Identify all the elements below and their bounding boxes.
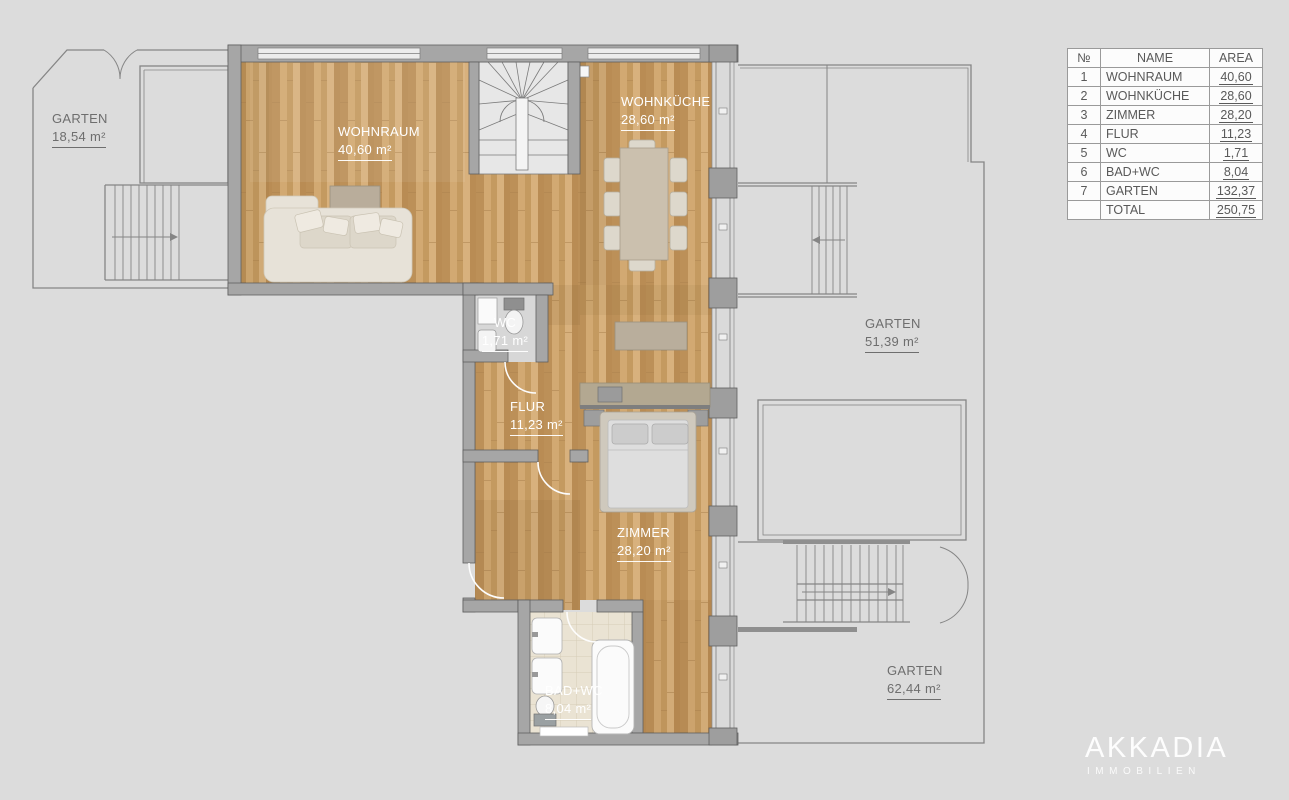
row-no: 5 — [1068, 144, 1101, 163]
row-no: 1 — [1068, 68, 1101, 87]
label-flur: FLUR 11,23 m² — [510, 399, 563, 436]
label-garten-right-upper: GARTEN 51,39 m² — [865, 316, 921, 353]
hall-sideboard — [615, 322, 687, 350]
room-area: 1,71 m² — [482, 333, 528, 351]
row-name: WOHNRAUM — [1101, 68, 1210, 87]
window-wall-east — [709, 45, 737, 745]
garden-door-swing — [940, 547, 968, 623]
label-wc: WC 1,71 m² — [478, 315, 532, 352]
garden-area: 62,44 m² — [887, 681, 941, 699]
row-no: 7 — [1068, 182, 1101, 201]
stair-direction-arrow — [170, 233, 178, 241]
table-row-total: TOTAL 250,75 — [1068, 201, 1263, 220]
label-wohnraum: WOHNRAUM 40,60 m² — [338, 124, 420, 161]
room-name: WOHNKÜCHE — [621, 94, 710, 110]
garden-right-outline — [738, 65, 984, 743]
room-area: 8,04 m² — [545, 701, 591, 719]
garden-area: 51,39 m² — [865, 334, 919, 352]
row-name: TOTAL — [1101, 201, 1210, 220]
brand-logo: AKKADIA IMMOBILIEN — [1085, 732, 1228, 777]
room-name: BAD+WC — [545, 683, 603, 699]
room-name: FLUR — [510, 399, 563, 415]
table-row: 5 WC 1,71 — [1068, 144, 1263, 163]
table-row: 3 ZIMMER 28,20 — [1068, 106, 1263, 125]
garden-left-outline — [33, 50, 228, 288]
row-name: FLUR — [1101, 125, 1210, 144]
room-area: 28,20 m² — [617, 543, 671, 561]
row-name: GARTEN — [1101, 182, 1210, 201]
table-row: 7 GARTEN 132,37 — [1068, 182, 1263, 201]
room-area: 11,23 m² — [510, 417, 563, 435]
table-row: 1 WOHNRAUM 40,60 — [1068, 68, 1263, 87]
row-name: ZIMMER — [1101, 106, 1210, 125]
row-no: 2 — [1068, 87, 1101, 106]
room-name: ZIMMER — [617, 525, 671, 541]
label-zimmer: ZIMMER 28,20 m² — [617, 525, 671, 562]
row-area: 28,20 — [1210, 106, 1263, 125]
floor-plan-page: WOHNRAUM 40,60 m² WOHNKÜCHE 28,60 m² WC … — [0, 0, 1289, 800]
room-area: 28,60 m² — [621, 112, 675, 130]
row-area: 250,75 — [1210, 201, 1263, 220]
garden-name: GARTEN — [865, 316, 921, 332]
garden-area: 18,54 m² — [52, 129, 106, 147]
row-no: 3 — [1068, 106, 1101, 125]
label-garten-right-lower: GARTEN 62,44 m² — [887, 663, 943, 700]
brand-name: AKKADIA — [1085, 732, 1228, 765]
label-badwc: BAD+WC 8,04 m² — [545, 683, 603, 720]
row-area: 11,23 — [1210, 125, 1263, 144]
table-header-no: № — [1068, 49, 1101, 68]
row-no — [1068, 201, 1101, 220]
interior-staircase — [479, 62, 568, 174]
stair-direction-arrow — [888, 588, 896, 596]
table-row: 2 WOHNKÜCHE 28,60 — [1068, 87, 1263, 106]
garden-name: GARTEN — [52, 111, 108, 127]
brand-tagline: IMMOBILIEN — [1087, 766, 1228, 777]
room-area: 40,60 m² — [338, 142, 392, 160]
dining-table — [620, 148, 668, 260]
garden-name: GARTEN — [887, 663, 943, 679]
row-area: 28,60 — [1210, 87, 1263, 106]
row-area: 40,60 — [1210, 68, 1263, 87]
table-row: 6 BAD+WC 8,04 — [1068, 163, 1263, 182]
row-name: WOHNKÜCHE — [1101, 87, 1210, 106]
row-area: 132,37 — [1210, 182, 1263, 201]
row-no: 4 — [1068, 125, 1101, 144]
label-wohnkueche: WOHNKÜCHE 28,60 m² — [621, 94, 710, 131]
bath-mat — [540, 727, 588, 736]
room-name: WC — [478, 315, 532, 331]
label-garten-left: GARTEN 18,54 m² — [52, 111, 108, 148]
row-name: WC — [1101, 144, 1210, 163]
table-row: 4 FLUR 11,23 — [1068, 125, 1263, 144]
stair-direction-arrow — [812, 236, 820, 244]
table-header-area: AREA — [1210, 49, 1263, 68]
area-summary-table: № NAME AREA 1 WOHNRAUM 40,60 2 WOHNKÜCHE… — [1067, 48, 1263, 220]
row-area: 8,04 — [1210, 163, 1263, 182]
room-name: WOHNRAUM — [338, 124, 420, 140]
row-area: 1,71 — [1210, 144, 1263, 163]
row-name: BAD+WC — [1101, 163, 1210, 182]
row-no: 6 — [1068, 163, 1101, 182]
table-header-name: NAME — [1101, 49, 1210, 68]
